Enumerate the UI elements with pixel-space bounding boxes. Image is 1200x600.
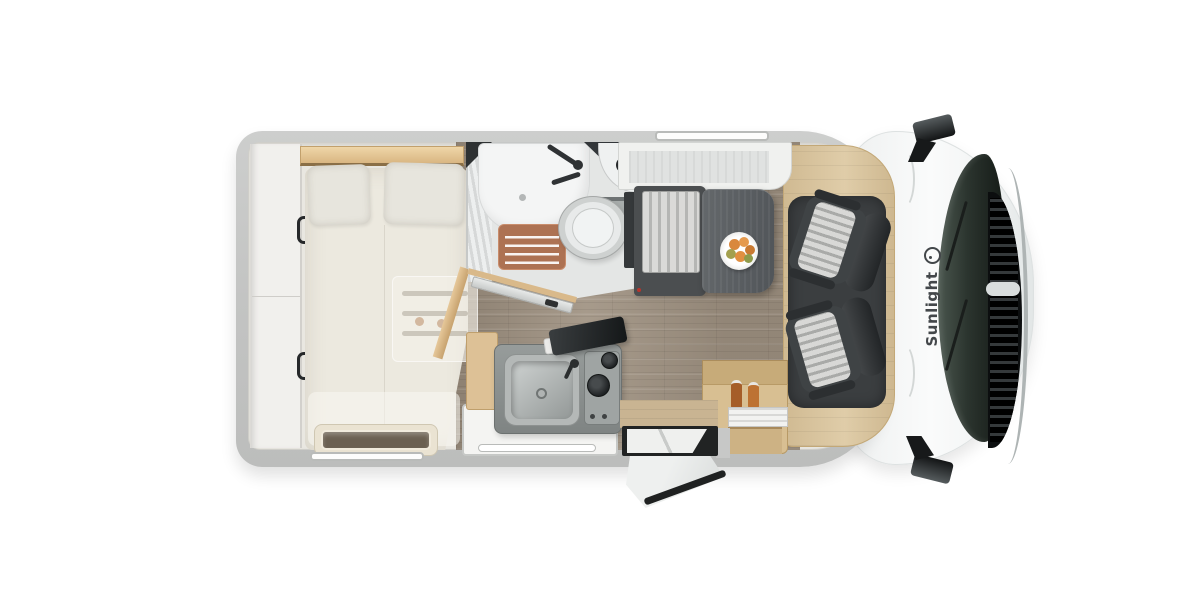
fruit-plate	[720, 232, 758, 270]
hob-knob-icon	[602, 414, 607, 419]
mirror-arm	[908, 138, 936, 162]
sun-icon	[924, 247, 941, 264]
wardrobe-divider	[252, 296, 300, 297]
side-mirror-icon	[902, 118, 954, 168]
entry-step-well	[622, 426, 718, 456]
toilet-seat	[572, 208, 614, 248]
sink-drain-icon	[519, 194, 526, 201]
kitchen-window-slit	[478, 444, 596, 452]
brand-name: Sunlight	[923, 271, 941, 346]
front-bumper	[1008, 168, 1028, 464]
pillow-left	[307, 164, 371, 226]
cabinet-drawer-stack	[728, 407, 788, 427]
hob-burner-icon	[587, 374, 610, 397]
wardrobe-handle-icon	[297, 352, 306, 380]
storage-rail	[402, 331, 468, 336]
shower-grate	[498, 224, 566, 270]
roof-window-slit	[655, 131, 769, 141]
bottle-icon	[731, 380, 742, 408]
side-window-slit	[310, 452, 424, 461]
cabinet-wood-front	[728, 427, 782, 454]
side-mirror-icon	[900, 430, 952, 480]
bathroom-faucet-base	[573, 160, 583, 170]
cab-door-seam	[893, 344, 915, 402]
storage-rail	[402, 311, 468, 316]
overhead-locker	[618, 142, 792, 190]
fruit	[744, 254, 753, 263]
skylight-glass	[321, 430, 431, 450]
hob-knob-icon	[590, 414, 595, 419]
rv-floor-plan: Sunlight	[0, 0, 1200, 600]
brand-lettering: Sunlight	[921, 237, 943, 357]
storage-item	[415, 317, 424, 326]
bottle-icon	[748, 382, 759, 408]
hob-burner-icon	[601, 352, 618, 369]
wardrobe-handle-icon	[297, 216, 306, 244]
overhead-locker-door	[629, 151, 769, 183]
entry-step	[627, 429, 707, 453]
shower-grate-slats	[505, 230, 559, 264]
pillow-right	[383, 162, 465, 226]
door-handle-icon	[545, 299, 559, 308]
drinks-cabinet-top	[702, 360, 788, 386]
seatbelt-anchor	[637, 288, 641, 292]
entry-wall-stub	[716, 428, 730, 458]
entry-floor	[620, 400, 718, 428]
dinette-bench	[634, 186, 706, 296]
kitchen-sink-drain-icon	[536, 388, 547, 399]
bench-cushion	[642, 191, 700, 273]
